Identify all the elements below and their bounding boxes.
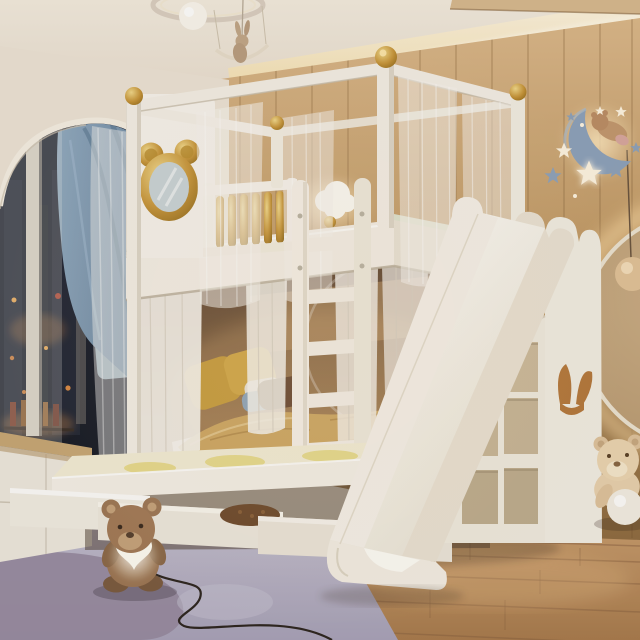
lower-curtain-left [137, 276, 202, 460]
finial-front-right [375, 46, 397, 68]
post-back-left [271, 126, 283, 188]
screenshot-root [0, 0, 640, 640]
ladder-rung-1 [309, 235, 354, 252]
bedroom-scene [0, 0, 640, 640]
finial-front-left [125, 87, 143, 105]
ladder-rail-right [354, 178, 371, 454]
mickey-mirror-glass [149, 162, 189, 212]
pendant-globe [179, 2, 207, 30]
finial-back-left [270, 116, 284, 130]
finial-far-right [510, 84, 527, 101]
slide-shadow [320, 586, 464, 606]
